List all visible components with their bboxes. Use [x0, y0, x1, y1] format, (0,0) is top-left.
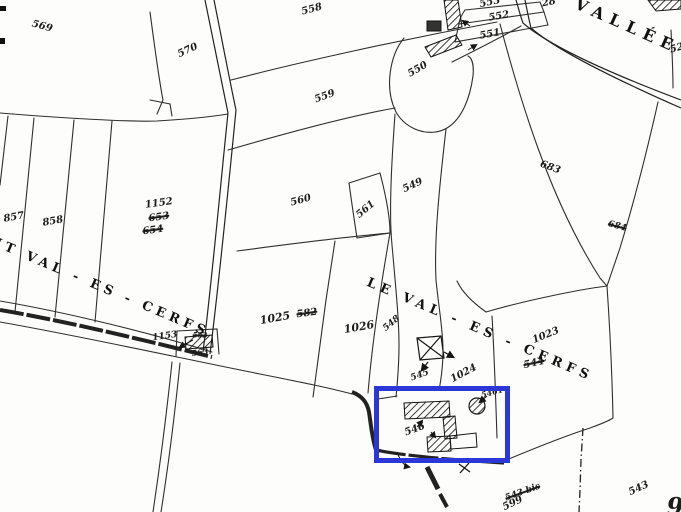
edge-marks	[0, 6, 6, 44]
building-top-small	[427, 21, 441, 31]
mutation-cross-icon	[417, 336, 453, 370]
building-top-vertical	[444, 0, 462, 30]
x-mark-icon	[459, 463, 470, 473]
highlight-rectangle	[374, 386, 510, 463]
hatched-strip-top-right	[648, 0, 681, 11]
parcel-boundaries	[0, 2, 673, 512]
map-canvas: 5695705585532855255155055952560561549683…	[0, 0, 681, 512]
roads	[0, 0, 681, 512]
map-linework	[0, 0, 681, 512]
buildings	[185, 0, 681, 452]
building-top-diagonal	[425, 35, 462, 57]
